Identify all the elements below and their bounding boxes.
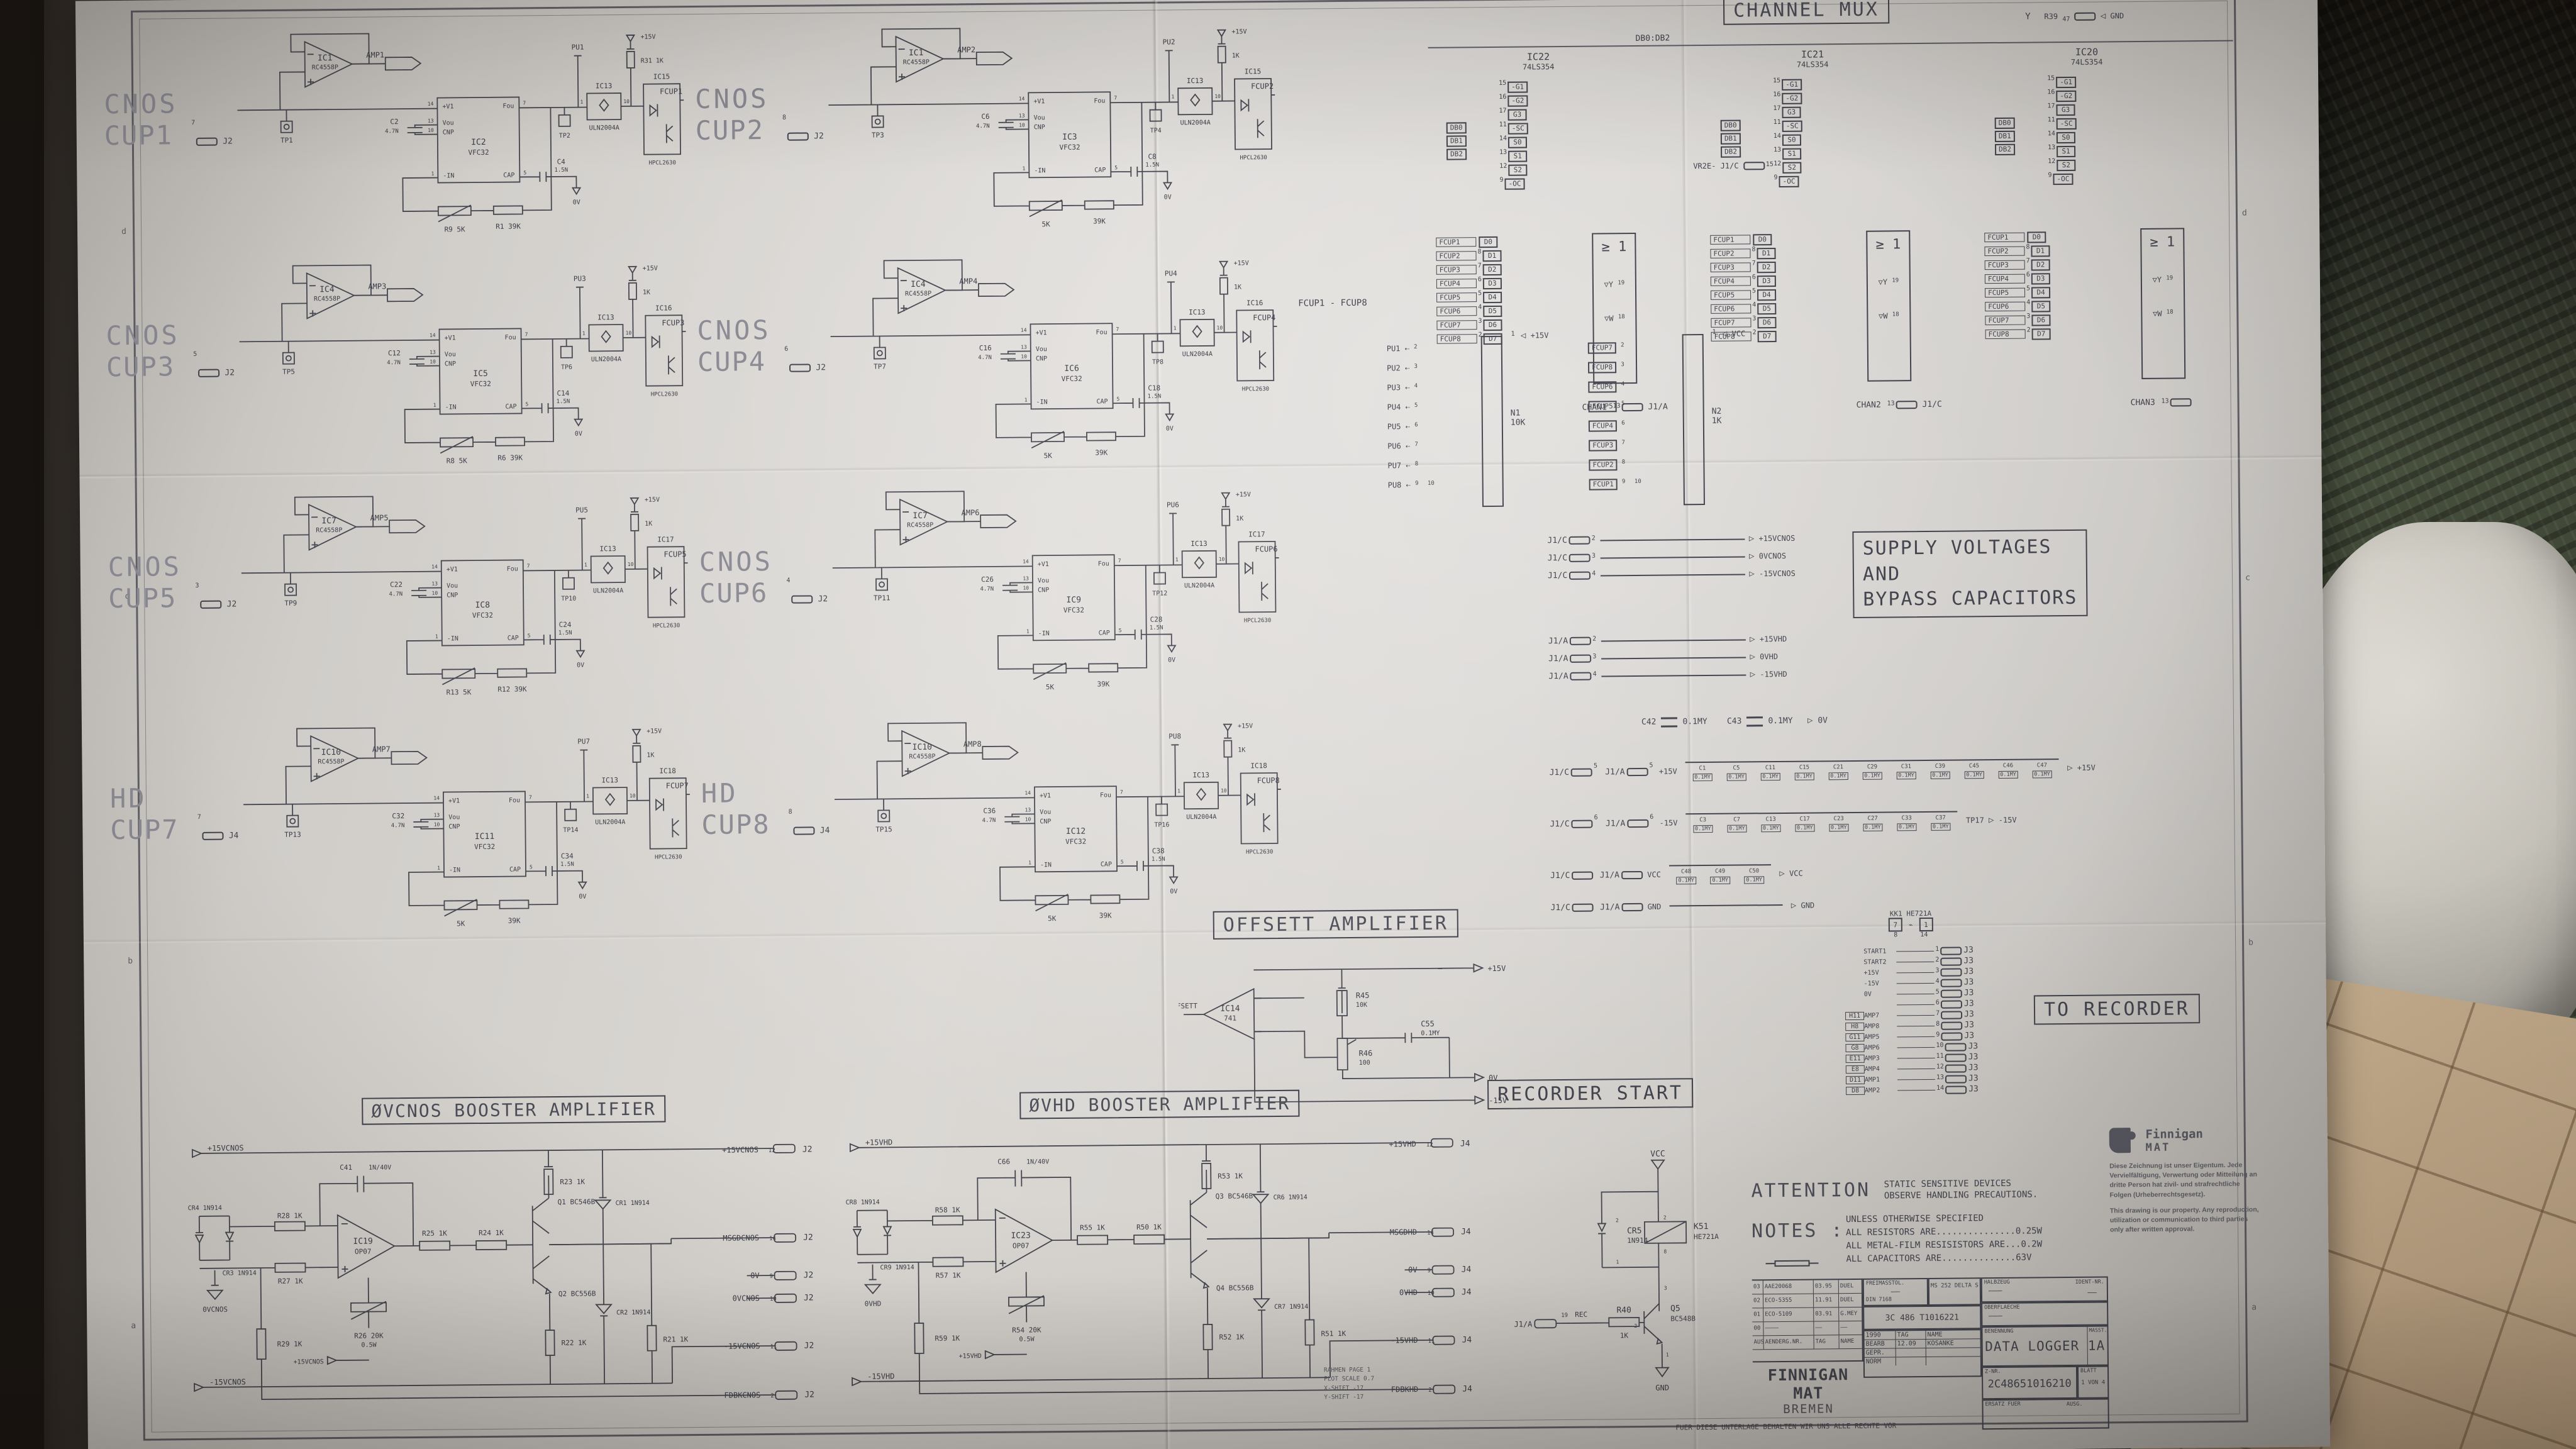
amp-signal: AMP1 — [1865, 1076, 1897, 1083]
channel-group-label: CNOS — [695, 83, 769, 114]
connector-icon — [1941, 1032, 1962, 1040]
source-flag: E8 — [1846, 1065, 1865, 1074]
connector-name: J3 — [1967, 1052, 1980, 1062]
channel-card: CNOS CUP3 5 J2 IC4 RC4558P AMP3 — [103, 255, 696, 491]
pin-label: -SC — [2057, 118, 2077, 130]
amp-signal: AMP4 — [959, 277, 977, 286]
driver-part: ULN2004A — [591, 356, 621, 363]
amp-signal: AMP3 — [1865, 1055, 1897, 1062]
signal-label: REC — [1575, 1311, 1587, 1319]
rail-label: -15V — [1659, 818, 1677, 827]
channel-name-row: CUP6 4 J2 — [699, 577, 828, 609]
gate-output-y: ▽Y 19 — [1594, 280, 1635, 289]
pin-number: 12 — [1498, 163, 1508, 170]
revision-row: 01 ECO-5109 03.91 G.MEY — [1752, 1307, 1862, 1323]
resistor-ref: R46 — [1359, 1049, 1373, 1058]
pull-resistor: R31 1K — [641, 57, 663, 64]
cap-ref: C42 — [1641, 718, 1657, 727]
data-pin: D3 — [1757, 275, 1776, 287]
bus-bit-label: DB0 — [1721, 120, 1741, 131]
svg-text:2: 2 — [1616, 1218, 1619, 1223]
connector-name: J1/C — [1545, 536, 1568, 545]
pin-number: 17 — [1772, 105, 1782, 112]
pin-number: 10 — [430, 359, 436, 365]
cap-value: 4.7N — [980, 586, 994, 592]
pin-number: 5 — [1121, 859, 1124, 865]
bus-label: DB0:DB2 — [1635, 33, 1670, 43]
capacitor-icon — [1661, 717, 1677, 727]
testpoint-label: TP2 — [559, 133, 570, 140]
ic-ref: IC21 — [1801, 48, 1824, 60]
rev-change-no: AAE20068 — [1763, 1280, 1814, 1294]
connector-icon — [196, 138, 218, 146]
plot-info-line: PLOT SCALE 0.7 — [1324, 1375, 1374, 1384]
recorder-amp-row: E11AMP311J3 — [1846, 1052, 1980, 1064]
pin-number: 9 — [1935, 1031, 1941, 1038]
plot-info-line: X-SHIFT -17 — [1324, 1384, 1374, 1393]
pin-number: 4 — [785, 577, 791, 584]
source-flag: D11 — [1846, 1076, 1865, 1084]
channel-circuit-drawing: IC4 RC4558P AMP4 TP7 +V1 Vou CNP -IN Fo — [829, 256, 1279, 480]
resistor-value: 10K — [1356, 1002, 1367, 1009]
svg-text:3: 3 — [1664, 1285, 1667, 1291]
channel-name-row: CUP8 8 J4 — [701, 808, 830, 840]
channel-name-row: CUP3 5 J2 — [106, 350, 235, 382]
zero-volt-label: 0V — [1170, 888, 1177, 895]
trim-pot: 5K — [1044, 452, 1053, 460]
channel-output-signal: FCUP7 — [666, 781, 689, 790]
rev-date: 03.95 — [1814, 1280, 1839, 1293]
bypass-cap-cell: C460.1MY — [1991, 763, 2025, 779]
driver-ref: IC13 — [597, 313, 614, 321]
input-signal: FCUP1 — [1710, 235, 1750, 245]
channel-card: CNOS CUP6 4 J2 IC7 RC4558P AMP6 — [696, 481, 1289, 718]
connector-icon — [1941, 1011, 1962, 1019]
vfc-pin: Vou — [447, 582, 458, 589]
pin-number: 15 — [2046, 75, 2056, 82]
input-signal: FCUP3 — [1985, 260, 2025, 270]
pullup-signal: PU2 — [1163, 38, 1175, 46]
pin-number: 11 — [1498, 121, 1508, 128]
frame-zone-label: a — [131, 1321, 136, 1331]
data-pin: D2 — [1757, 262, 1776, 273]
vfc-pin: Fou — [509, 797, 520, 804]
opto-ref: IC18 — [1250, 762, 1267, 770]
channel-name-row: CUP1 7 J2 — [104, 119, 233, 151]
vfc-pin: CNP — [1036, 355, 1047, 362]
rail-label: VCC — [1789, 869, 1803, 878]
connector-name: J2 — [814, 131, 824, 141]
channel-output-signal: FCUP4 — [1253, 313, 1275, 322]
connector-icon — [1945, 1085, 1967, 1094]
pin-label: -G2 — [1782, 93, 1802, 104]
vfc-part: VFC32 — [1059, 143, 1080, 152]
bypass-cap-cell: C130.1MY — [1754, 816, 1788, 832]
amp-part: RC4558P — [318, 758, 344, 765]
resistor-ref: R40 — [1616, 1306, 1631, 1315]
cap-value: 1.5N — [1145, 162, 1159, 169]
data-bus-pins: DB0 DB1 DB2 — [1995, 118, 2015, 155]
data-pin: D2 — [2031, 259, 2050, 270]
pin-number: 13 — [1935, 1074, 1945, 1081]
net-pin: PU5 — [1387, 422, 1401, 431]
net-pin: FCUP4 — [1589, 420, 1617, 431]
drawing-number: 2C48651016210 — [1983, 1377, 2076, 1391]
pin-number: 1 — [433, 402, 436, 408]
mux-inputs: FCUP1D0 FCUP28D1 FCUP37D2 FCUP46D3 FCUP5… — [1984, 229, 2051, 341]
resistor-value: 1K — [1620, 1331, 1629, 1340]
cap-value: 1.5N — [557, 399, 570, 405]
trim-pot: R9 5K — [444, 225, 465, 233]
amp-ref: IC1 — [909, 48, 924, 58]
channel-group-label: HD — [701, 777, 738, 809]
recorder-amp-row: D11AMP113J3 — [1846, 1074, 1980, 1085]
pin-number: 7 — [529, 794, 532, 800]
pin-label: -OC — [1779, 176, 1799, 187]
bus-bit-label: DB1 — [1995, 131, 2015, 142]
connector-icon — [203, 832, 224, 840]
data-pin: D0 — [1753, 234, 1772, 245]
blatt-cell: BLATT 1 VON 4 — [2077, 1365, 2109, 1398]
opto-ref: IC15 — [653, 72, 670, 80]
pin-number: 14 — [1021, 327, 1027, 333]
connector-icon — [1941, 1021, 1962, 1030]
testpoint-label: TP4 — [1150, 128, 1162, 135]
net-pin: FCUP8 — [1588, 362, 1616, 373]
vfc-pin: CNP — [447, 592, 458, 599]
channel-input-section: CNOS CUP1 7 J2 IC1 RC4558P AMP1 — [101, 18, 1291, 954]
section-title-to-recorder: TO RECORDER — [2034, 994, 2200, 1024]
data-pin: D3 — [1483, 278, 1502, 289]
bypass-cap-cell: C10.1MY — [1685, 765, 1719, 781]
connector-icon — [794, 826, 815, 835]
zero-volt-label: 0V — [575, 431, 582, 438]
ic-part: 741 — [1224, 1014, 1236, 1023]
cap-ref: C22 — [390, 580, 402, 589]
supply-voltages-section: SUPPLY VOLTAGESANDBYPASS CAPACITORS J1/C… — [1545, 511, 2241, 970]
gnd-rail: J1/C J1/A GND ▷ GND — [1549, 901, 1815, 913]
vfc-pin: Vou — [1036, 346, 1047, 353]
pin-number: 16 — [1772, 91, 1782, 98]
pin-number: 14 — [2046, 130, 2057, 137]
pin-number: 10 — [428, 128, 434, 133]
pin-number: 10 — [626, 330, 632, 336]
net-pin: PU4 — [1387, 402, 1401, 411]
input-signal: FCUP2 — [1436, 251, 1476, 261]
pin-number: 14 — [1024, 790, 1031, 796]
relay-kk1: KK1 HE721A 7⌁1 8 14 — [1882, 909, 1940, 939]
pin-number: 1 — [580, 99, 583, 105]
vfc-pin: CAP — [1099, 630, 1110, 636]
data-pin: D4 — [2031, 287, 2050, 298]
r39-network: Y R39 47 ◁ GND — [2025, 11, 2124, 23]
amp-ref: IC10 — [321, 748, 341, 757]
pin-label: S1 — [2057, 146, 2075, 157]
pin-number: 16 — [2046, 89, 2056, 96]
pin-number: 13 — [2046, 144, 2057, 151]
attention-label: ATTENTION — [1751, 1179, 1870, 1202]
pin-label: -OC — [1504, 179, 1524, 190]
net-pin: PU3 — [1387, 383, 1401, 392]
channel-connector: 3 J2 — [194, 599, 237, 609]
connector-name: J2 — [816, 363, 826, 372]
amp-signal: AMP5 — [1864, 1033, 1897, 1040]
pin-number: 1 — [1024, 397, 1028, 402]
pull-resistor: 1K — [1232, 52, 1240, 59]
pin-number: 8 — [1935, 1021, 1941, 1028]
pin-number: 10 — [1025, 816, 1031, 822]
bypass-cap-cell: C150.1MY — [1787, 764, 1821, 780]
resistor-value: 47 — [2062, 16, 2070, 23]
feedback-resistor: R1 39K — [496, 222, 521, 230]
vfc-pin: -IN — [1034, 167, 1045, 174]
channel-connector: 5 J2 — [192, 368, 235, 378]
driver-ref: IC13 — [1192, 771, 1209, 779]
recorder-amp-row: H8AMP88J3 — [1845, 1020, 1980, 1032]
connector-icon — [789, 364, 811, 372]
testpoint-label: TP16 — [1154, 821, 1169, 828]
channel-name-row: CUP5 3 J2 — [108, 582, 236, 614]
bypass-cap-cell: C230.1MY — [1822, 816, 1856, 831]
pin-number: 13 — [1019, 113, 1025, 118]
cap-value: 4.7N — [389, 591, 402, 597]
pin-number: 1 — [586, 794, 589, 799]
oberflaeche-cell: OBERFLAECHE——— — [1981, 1301, 2108, 1326]
pin-number: 10 — [431, 591, 438, 596]
pin-number: 14 — [430, 333, 436, 338]
rail-label: +15V — [643, 265, 658, 272]
zero-volt-label: 0V — [1818, 716, 1828, 725]
channel-signal: CHAN3 — [2131, 398, 2155, 408]
vfc-pin: +V1 — [442, 103, 453, 110]
vfc-pin: Fou — [507, 565, 518, 572]
zero-volt-label: 0V — [1164, 194, 1172, 201]
cap-value: 1.5N — [1150, 625, 1163, 631]
vfc-part: VFC32 — [470, 380, 491, 388]
opto-part: HPCL2630 — [653, 623, 680, 629]
net-pin: PU6 — [1387, 441, 1401, 450]
channel-name: CUP6 — [699, 577, 769, 609]
pin-label: S1 — [1782, 148, 1801, 160]
offset-circuit-drawing: IC14 741 OFFSETT R45 10K R46 100 C55 0.1… — [1178, 942, 1531, 1115]
connector-name: J2 — [223, 136, 233, 146]
rail-label: +15V — [1531, 331, 1549, 340]
rail-label: -15V — [1999, 816, 2017, 824]
pin-number: 10 — [628, 562, 634, 567]
mux-unit: IC2074LS354 15-G1 16-G2 17G3 11-SC 14S0 … — [1977, 45, 2231, 437]
input-signal: FCUP4 — [1985, 274, 2025, 284]
pin-number: 7 — [1751, 260, 1757, 267]
section-title-channel-mux: CHANNEL MUX — [1723, 0, 1889, 25]
vcc-rail: J1/C J1/A VCC C480.1MYC490.1MYC500.1MY ▷… — [1548, 864, 1803, 886]
rail-label: +15V — [2077, 763, 2096, 772]
benennung-cell: BENENNUNG DATA LOGGER 1A MASST. — [1981, 1325, 2109, 1367]
amp-part: RC4558P — [909, 753, 935, 760]
pin-number: 11 — [1935, 1053, 1945, 1060]
resistor-icon — [2075, 13, 2096, 21]
resistor-ref: R39 — [2044, 12, 2058, 21]
minus15-rail: J1/C6 J1/A6 -15V C30.1MYC70.1MYC130.1MYC… — [1548, 811, 2016, 835]
rail-label: +15V — [1487, 964, 1506, 973]
amp-signal: AMP6 — [1864, 1044, 1897, 1051]
pin-number: 1 — [1175, 557, 1179, 562]
cap-ref: C4 — [557, 158, 565, 166]
vfc-part: VFC32 — [472, 611, 493, 619]
pin-number: 13 — [1498, 149, 1508, 156]
frame-zone-label: d — [2242, 208, 2247, 218]
opto-ref: IC17 — [1248, 530, 1265, 538]
input-signal: FCUP6 — [1985, 302, 2025, 312]
trim-pot: 5K — [1041, 220, 1050, 228]
connector-icon — [1945, 1075, 1967, 1083]
gnd-label: GND — [2110, 11, 2124, 20]
cap-value: 1.5N — [554, 167, 568, 174]
vfc-ref: IC2 — [471, 138, 486, 147]
pin-number: 1 — [1177, 788, 1180, 794]
pin-number: 14 — [428, 101, 434, 107]
bypass-cap-cell: C470.1MY — [2025, 762, 2059, 778]
amp-signal: AMP2 — [1865, 1087, 1897, 1094]
pin-number: 12 — [1772, 160, 1782, 167]
amp-ref: IC10 — [913, 743, 932, 752]
pin-number: 5 — [192, 351, 198, 358]
pin-number: 1 — [1510, 331, 1516, 338]
rev-name: DUEL — [1839, 1294, 1862, 1307]
pin-label: S2 — [2057, 160, 2075, 171]
driver-part: ULN2004A — [593, 587, 623, 594]
company-city: BREMEN — [1753, 1402, 1863, 1417]
recorder-amp-row: H11AMP77J3 — [1845, 1009, 1980, 1021]
pin-number: 1 — [1711, 329, 1718, 336]
vfc-pin: CNP — [1038, 587, 1049, 594]
gate-output-w: ▽W 18 — [2142, 309, 2184, 318]
bypass-cap-cell: C290.1MY — [1855, 763, 1889, 779]
resistor-value: 100 — [1359, 1060, 1370, 1067]
opto-part: HPCL2630 — [648, 160, 675, 166]
pin-number: 5 — [2025, 285, 2031, 292]
recorder-amp-row: G8AMP610J3 — [1845, 1041, 1980, 1053]
to-recorder-section: KK1 HE721A 7⌁1 8 14 START11J3 START22J3 … — [1845, 907, 2249, 1124]
channel-connector: 4 J2 — [786, 594, 828, 604]
connector-icon — [1945, 1064, 1967, 1072]
testpoint-label: TP10 — [561, 596, 576, 602]
opto-part: HPCL2630 — [1244, 618, 1271, 624]
pin-number: 14 — [1498, 135, 1508, 142]
pin-label: S2 — [1508, 164, 1527, 175]
revision-row: 03 AAE20068 03.95 DUEL — [1752, 1280, 1862, 1295]
cap-ref: C18 — [1148, 384, 1160, 392]
amp-signal: AMP7 — [1864, 1012, 1897, 1019]
driver-part: ULN2004A — [1184, 582, 1214, 589]
amp-signal: AMP6 — [962, 508, 980, 517]
cap-value: 4.7N — [387, 360, 401, 366]
input-signal: FCUP3 — [1711, 262, 1751, 272]
section-title-offset: OFFSETT AMPLIFIER — [1213, 909, 1458, 939]
cap-ref: C43 — [1727, 717, 1742, 726]
amp-part: RC4558P — [312, 64, 338, 71]
vfc-pin: +V1 — [1036, 330, 1047, 336]
ic-part: 74LS354 — [1797, 60, 1829, 69]
testpoint-label: TP3 — [872, 131, 884, 139]
pin-label: G3 — [1508, 109, 1527, 120]
channel-group-label: CNOS — [106, 319, 180, 351]
notes-section: ATTENTION STATIC SENSITIVE DEVICESOBSERV… — [1751, 1177, 2129, 1267]
legal-text-german: Diese Zeichnung ist unser Eigentum. Jede… — [2109, 1160, 2261, 1200]
channel-connector: 7 J2 — [190, 136, 233, 147]
vfc-pin: Fou — [1094, 97, 1105, 104]
title-block: 03 AAE20068 03.95 DUEL 02 ECO-5355 11.91… — [1752, 1276, 2109, 1431]
ms-cell: MS 252 DELTA S — [1928, 1277, 1981, 1306]
driver-part: ULN2004A — [1182, 351, 1213, 358]
drawing-code-cell: 3C 486 T1016221 — [1863, 1305, 1981, 1330]
svg-text:8: 8 — [1663, 1249, 1667, 1255]
pin-number: 13 — [1023, 575, 1029, 581]
vfc-part: VFC32 — [1063, 606, 1084, 614]
pin-number: 5 — [1477, 290, 1483, 297]
pull-resistor: 1K — [1234, 284, 1241, 291]
amp-signal: AMP5 — [370, 513, 389, 522]
network-ref: N2 — [1712, 407, 1722, 416]
driver-ref: IC13 — [1191, 540, 1207, 548]
rev-number: 00 — [1752, 1322, 1763, 1335]
vfc-pin: +V1 — [447, 566, 458, 573]
vfc-pin: +V1 — [1040, 792, 1051, 799]
channel-card: CNOS CUP4 6 J2 IC4 RC4558P AMP4 — [694, 250, 1287, 486]
pin-label: -G1 — [2056, 77, 2076, 88]
rail-label: +15V — [1231, 28, 1246, 35]
network-value: 10K — [1511, 418, 1526, 428]
plot-info-block: RAHMEN PAGE 1PLOT SCALE 0.7X-SHIFT -17Y-… — [1324, 1366, 1375, 1402]
opto-ref: IC17 — [657, 535, 674, 543]
testpoint-label: TP6 — [561, 364, 572, 371]
vfc-pin: -IN — [1038, 630, 1050, 637]
channel-group-label: HD — [110, 783, 147, 814]
vfc-pin: Vou — [1034, 114, 1045, 121]
driver-part: ULN2004A — [1186, 814, 1216, 821]
pin-number: 7 — [1120, 789, 1123, 795]
opto-ref: IC18 — [659, 767, 676, 775]
plus15-rail: J1/C5 J1/A5 +15V C10.1MYC50.1MYC110.1MYC… — [1548, 758, 2096, 783]
logo-text: MAT — [2145, 1141, 2203, 1154]
network-n1: N110K 1 ◁ +15V PU1 ⇠ 2 PU2 ⇠ 3 PU3 ⇠ 4 P… — [1387, 326, 1588, 328]
pin-number: 9 — [1498, 177, 1504, 184]
testpoint-label: TP7 — [874, 362, 886, 370]
bypass-cap-cell: C210.1MY — [1821, 764, 1855, 780]
channel-group-label: CNOS — [697, 314, 771, 346]
pin-number: 14 — [1023, 558, 1029, 564]
zero-volt-label: 0V — [573, 199, 580, 206]
vfc-pin: Fou — [1096, 329, 1107, 336]
connector-name: J3 — [1962, 1009, 1976, 1019]
vfc-pin: CAP — [1101, 861, 1112, 868]
gate-output-w: ▽W 18 — [1868, 311, 1909, 321]
cap-ref: C26 — [981, 575, 994, 584]
bypass-cap-cell: C50.1MY — [1719, 765, 1753, 780]
channel-group-label: CNOS — [699, 546, 774, 577]
channel-name: CUP2 — [696, 114, 765, 146]
pin-number: 5 — [528, 633, 531, 638]
pin-number: 7 — [527, 563, 530, 569]
source-flag: G11 — [1845, 1033, 1864, 1041]
mux-channel-output: CHAN2 13 J1/C — [1857, 400, 1942, 410]
vfc-pin: CNP — [448, 823, 460, 830]
pin-number: 10 — [623, 99, 630, 104]
freimass-cell: FREIMASSTOL.——DIN 7168 — [1863, 1278, 1928, 1306]
rail-label: +15V — [1659, 767, 1677, 775]
relay-part: HE721A — [1906, 909, 1931, 918]
channel-card: CNOS CUP5 3 J2 IC7 RC4558P AMP5 — [105, 486, 698, 723]
pin-number: 10 — [1221, 788, 1227, 794]
